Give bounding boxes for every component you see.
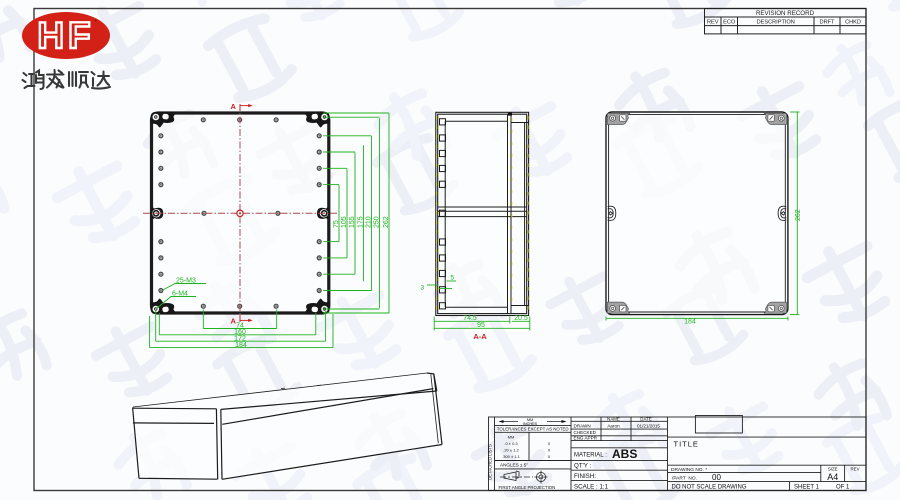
svg-text:DRFT: DRFT [820, 20, 835, 26]
svg-text:OF 1: OF 1 [836, 485, 850, 491]
svg-text:262: 262 [795, 209, 802, 221]
svg-text:105: 105 [341, 216, 348, 228]
svg-text:CHECKED: CHECKED [574, 430, 597, 435]
svg-text:DETACHED LISTS: DETACHED LISTS [488, 444, 493, 480]
svg-text:CHKD: CHKD [845, 20, 861, 26]
svg-text:MM: MM [508, 435, 515, 440]
svg-text:SHEET 1: SHEET 1 [794, 485, 820, 491]
svg-text:ABS: ABS [612, 447, 637, 461]
svg-text:184: 184 [684, 319, 696, 326]
svg-text:.20 ± 1.2: .20 ± 1.2 [503, 448, 519, 453]
svg-text:DRAWN: DRAWN [574, 423, 591, 428]
svg-text:184: 184 [235, 342, 247, 349]
svg-text:X: X [548, 448, 551, 453]
svg-text:95: 95 [477, 322, 485, 329]
svg-text:ECO: ECO [723, 20, 736, 26]
svg-text:262: 262 [383, 216, 390, 228]
svg-text:01/21/2015: 01/21/2015 [637, 423, 660, 428]
svg-text:REV: REV [850, 466, 859, 471]
svg-text:ANGLES ± 5°: ANGLES ± 5° [500, 463, 528, 468]
svg-text:A4: A4 [827, 472, 838, 482]
svg-text:Aaron: Aaron [607, 423, 620, 428]
svg-text:NAME: NAME [607, 416, 620, 421]
svg-text:A-A: A-A [473, 332, 487, 341]
svg-text:DO NOT SCALE DRAWING: DO NOT SCALE DRAWING [672, 485, 747, 491]
svg-text:DESCRIPTION: DESCRIPTION [757, 20, 795, 26]
svg-text:SCALE : 1:1: SCALE : 1:1 [574, 483, 609, 490]
svg-text:X: X [548, 454, 551, 459]
svg-text:REV: REV [707, 20, 719, 26]
svg-text:00: 00 [712, 473, 721, 482]
svg-text:X: X [548, 441, 551, 446]
svg-text:250: 250 [373, 216, 380, 228]
svg-text:74.5: 74.5 [463, 315, 477, 322]
svg-text:3: 3 [421, 285, 425, 292]
svg-text:REVISION RECORD: REVISION RECORD [756, 10, 815, 17]
svg-text:DRAWING NO. *: DRAWING NO. * [671, 467, 707, 473]
svg-text:A: A [231, 102, 237, 111]
svg-text:FINISH:: FINISH: [574, 473, 596, 480]
svg-text:.300 ± 1.1: .300 ± 1.1 [502, 454, 521, 459]
svg-text:MATERIAL :: MATERIAL : [574, 453, 607, 459]
svg-text:25-M3: 25-M3 [176, 278, 196, 285]
svg-text:QT'Y :: QT'Y : [574, 463, 592, 470]
svg-text:6-M4: 6-M4 [172, 291, 188, 298]
svg-text:FIRST ANGLE PROJECTION: FIRST ANGLE PROJECTION [499, 485, 556, 490]
svg-text:20.5: 20.5 [514, 315, 528, 322]
svg-text:DATE: DATE [640, 416, 651, 421]
svg-text:SIZE: SIZE [828, 466, 838, 471]
svg-text:.0 ± 0.3: .0 ± 0.3 [504, 441, 518, 446]
svg-text:TOLERANCES EXCEPT AS NOTED: TOLERANCES EXCEPT AS NOTED [497, 427, 569, 432]
svg-text:HF: HF [37, 15, 94, 56]
svg-text:75: 75 [333, 220, 340, 228]
svg-text:175: 175 [357, 216, 364, 228]
svg-text:210: 210 [365, 216, 372, 228]
svg-text:155: 155 [349, 216, 356, 228]
svg-text:INCHES: INCHES [523, 422, 538, 426]
svg-text:5: 5 [451, 275, 455, 282]
svg-text:/PART NO.: /PART NO. [672, 475, 697, 481]
svg-text:ENG APPR: ENG APPR [574, 436, 598, 441]
svg-text:TITLE: TITLE [674, 440, 699, 449]
